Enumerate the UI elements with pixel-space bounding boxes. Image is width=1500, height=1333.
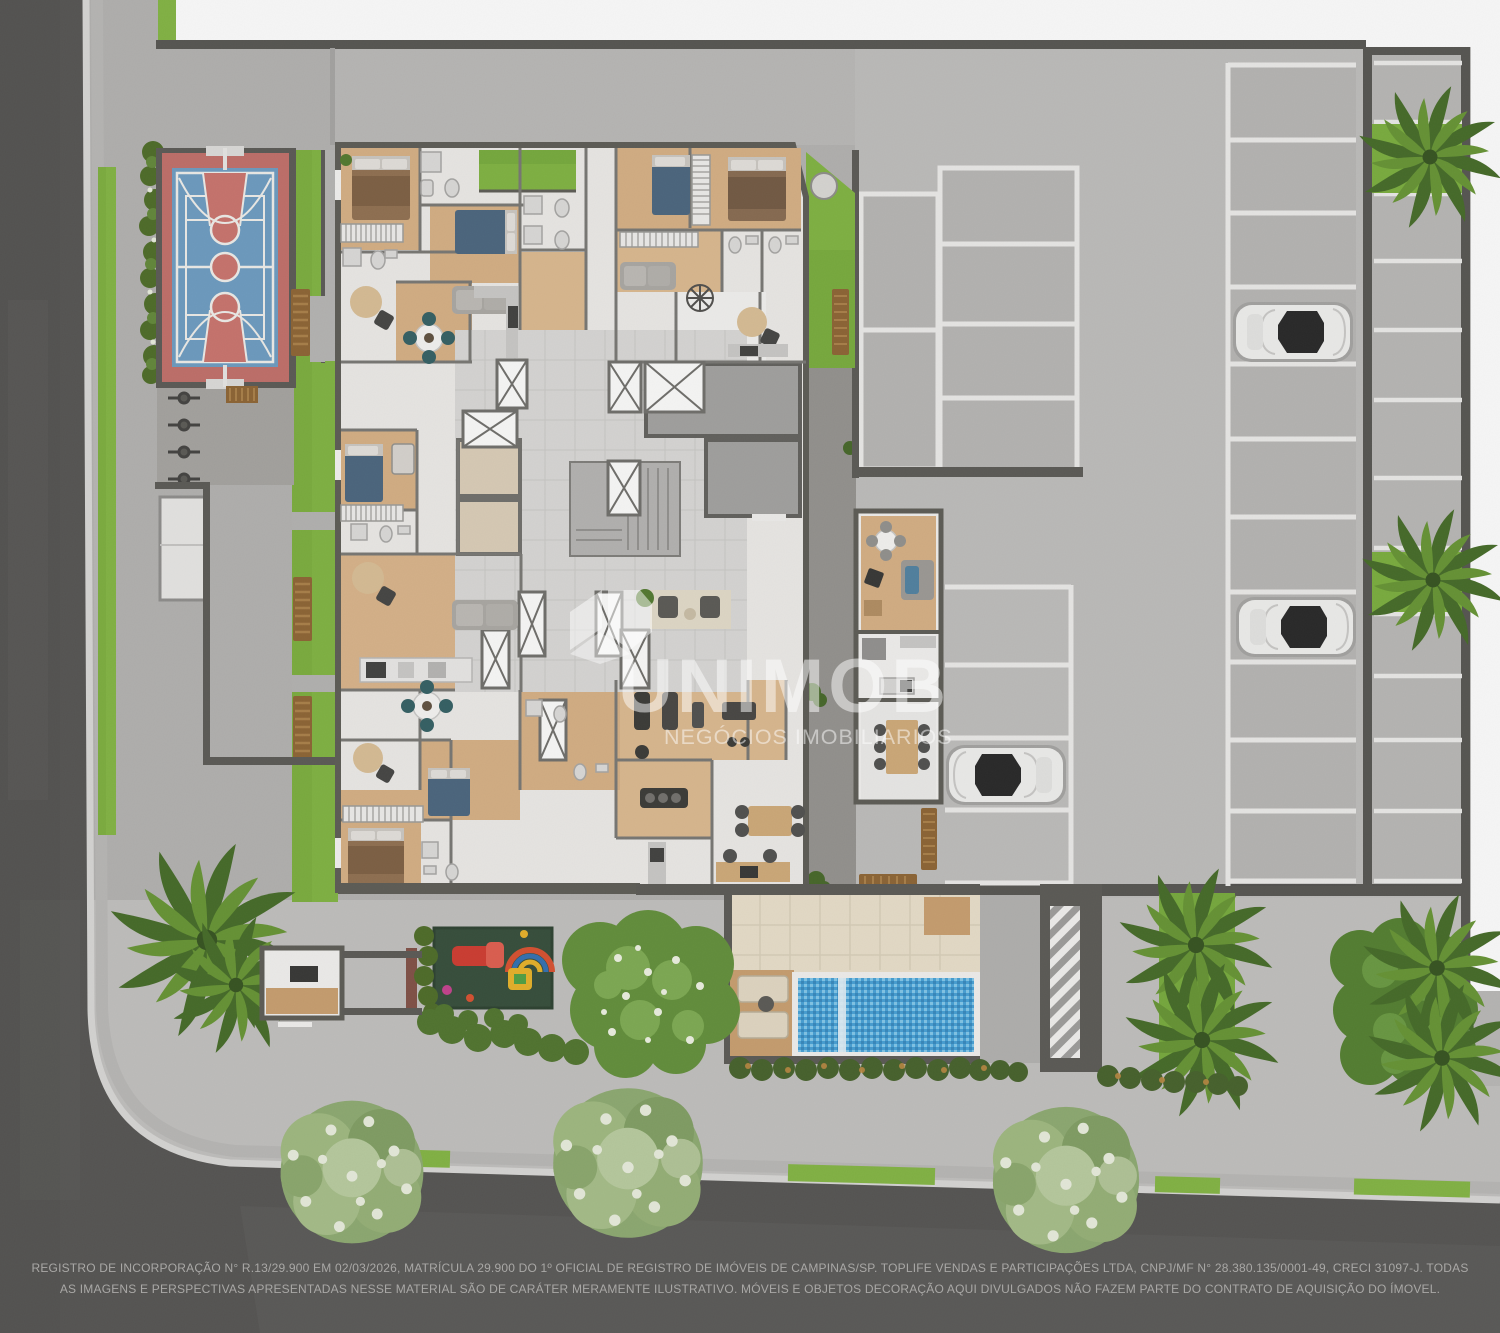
svg-text:AS IMAGENS E PERSPECTIVAS APRE: AS IMAGENS E PERSPECTIVAS APRESENTADAS N… bbox=[60, 1281, 1440, 1296]
svg-text:NEGÓCIOS IMOBILIARIOS: NEGÓCIOS IMOBILIARIOS bbox=[664, 724, 953, 749]
svg-text:REGISTRO DE INCORPORAÇÃO N° R.: REGISTRO DE INCORPORAÇÃO N° R.13/29.900 … bbox=[31, 1260, 1468, 1275]
svg-text:UNIMOB: UNIMOB bbox=[618, 644, 950, 729]
